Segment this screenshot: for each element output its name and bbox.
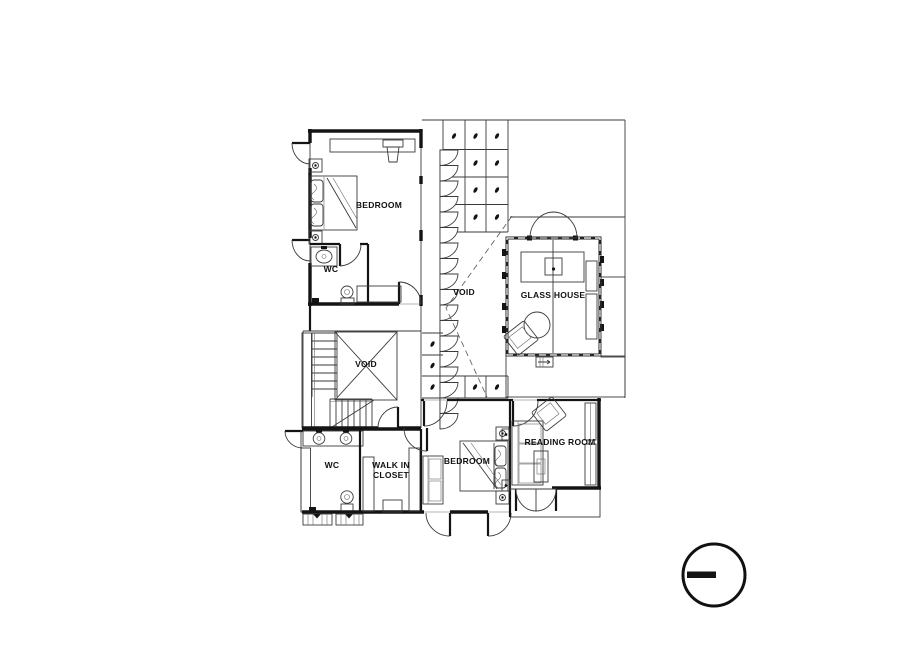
- tv-unit: [383, 140, 403, 147]
- deck-east: [601, 277, 625, 357]
- room-label-reading-room: READING ROOM: [525, 437, 596, 447]
- room-label-bedroom-lower: BEDROOM: [444, 456, 490, 466]
- sink-counter: [303, 431, 363, 446]
- sofa: [512, 421, 543, 485]
- drawer-unit: [383, 500, 402, 512]
- section-marker-icon: [683, 544, 745, 606]
- upper-bedroom: BEDROOM: [292, 129, 422, 306]
- closet-hatch: [409, 448, 420, 511]
- louver-wall: [301, 448, 311, 512]
- bench-seat: [423, 456, 443, 504]
- wardrobe-shelf: [330, 139, 415, 152]
- bed: [310, 176, 357, 230]
- stair-treads: [312, 333, 337, 397]
- room-label-walk-in-closet-2: CLOSET: [373, 470, 410, 480]
- room-label-wc-upper: WC: [324, 264, 339, 274]
- toilet: [341, 491, 353, 503]
- armchair: [531, 397, 566, 432]
- walk-in-closet: WALK IN CLOSET: [363, 428, 427, 512]
- room-label-void-stair: VOID: [355, 359, 377, 369]
- room-label-walk-in-closet-1: WALK IN: [372, 460, 410, 470]
- exterior-door-leaves: [292, 143, 310, 240]
- stair-lower-run: [330, 399, 372, 428]
- reading-room: READING ROOM: [502, 397, 601, 517]
- room-label-bedroom-upper: BEDROOM: [356, 200, 402, 210]
- room-label-glass-house: GLASS HOUSE: [521, 290, 586, 300]
- floor-plan-canvas: VOID GLASS HOUSE: [0, 0, 920, 651]
- room-label-void-court: VOID: [453, 287, 475, 297]
- lower-bedroom: BEDROOM: [421, 427, 511, 536]
- upper-wc: WC: [310, 244, 401, 304]
- glass-house-double-door: [530, 212, 577, 238]
- glass-house: GLASS HOUSE: [502, 212, 604, 355]
- room-label-wc-lower: WC: [325, 460, 340, 470]
- stair-void: VOID: [302, 306, 508, 428]
- toilet: [341, 286, 353, 298]
- deck-south: [506, 356, 625, 397]
- closet-hatch: [357, 286, 401, 302]
- floor-plan: VOID GLASS HOUSE: [0, 0, 920, 651]
